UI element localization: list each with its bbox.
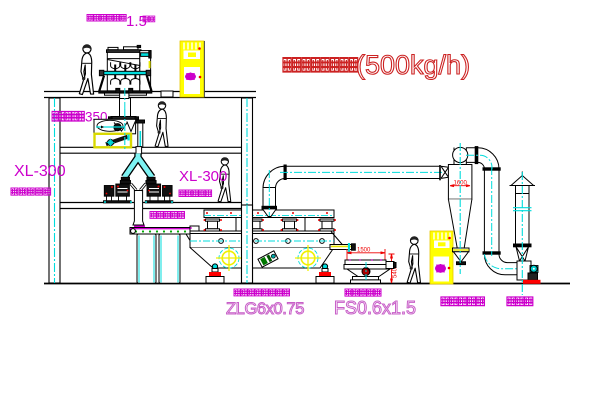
svg-text:1500: 1500 [357,248,371,254]
svg-text:FS0.6x1.5: FS0.6x1.5 [334,298,416,318]
svg-text:XL-300: XL-300 [14,163,66,180]
svg-text:1.5: 1.5 [126,13,147,30]
svg-text:XL-300: XL-300 [179,168,227,185]
svg-text:(500kg/h): (500kg/h) [356,50,470,80]
svg-text:ZLG6x0.75: ZLG6x0.75 [226,300,304,318]
